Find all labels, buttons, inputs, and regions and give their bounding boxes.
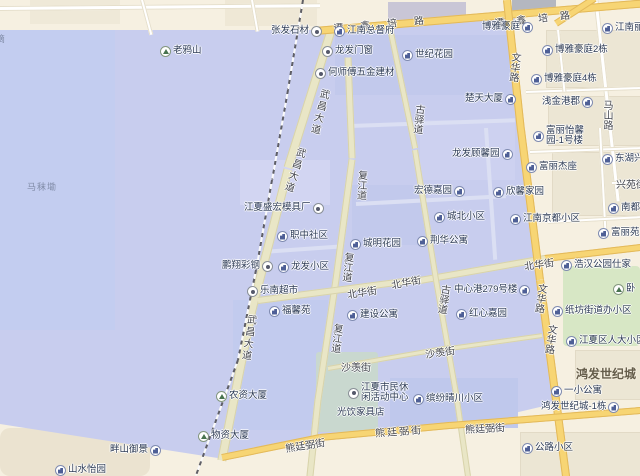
building-icon (502, 149, 513, 160)
poi-chengbei-xiaoqu[interactable]: 城北小区 (434, 212, 485, 223)
building-mountain-icon (216, 391, 227, 402)
poi-fuli-jiezuo[interactable]: 富丽杰座 (526, 162, 577, 173)
map-block (335, 35, 515, 95)
poi-pengxiang-caigang[interactable]: 鹏翔彩钢 (222, 261, 273, 272)
building-icon (55, 465, 66, 476)
minor-road (526, 86, 640, 94)
poi-zhongxingang-279[interactable]: 中心港279号楼 (454, 285, 530, 296)
poi-longfa-menchuang[interactable]: 龙发门窗 (322, 46, 373, 57)
poi-jinghua-gongyu[interactable]: 荆华公寓 (417, 236, 468, 247)
poi-jianshe-gongyu[interactable]: 建设公寓 (347, 310, 398, 321)
building-icon (531, 74, 542, 85)
road-label-mashanlu: 马山路 (599, 100, 614, 130)
water-tint (0, 30, 115, 330)
building-icon (533, 131, 544, 142)
building-icon (608, 402, 619, 413)
poi-gonglu-xiaoqu[interactable]: 公路小区 (522, 443, 573, 454)
building-icon (454, 186, 465, 197)
poi-shanshui-yiyuan[interactable]: 山水怡园 (55, 465, 106, 476)
area-label-hongfa-shijicheng: 鸿发世纪城 (576, 365, 636, 382)
building-icon (269, 306, 280, 317)
poi-nandu[interactable]: 南都 (608, 203, 640, 214)
poi-fuli-yuan[interactable]: 富丽苑 (598, 228, 640, 239)
building-icon (551, 386, 562, 397)
map-canvas[interactable]: 谭鑫培路 谭鑫培路 武昌大道 武昌大道 武昌大道 复江道 复江道 复江道 北华街… (0, 0, 640, 476)
poi-wuzi-dasha[interactable]: 物资大厦 (198, 431, 249, 442)
poi-guangyin-jiajudian[interactable]: 光饮家具店 (337, 408, 385, 418)
poi-hongfa-1dong[interactable]: 鸿发世纪城-1栋 (541, 402, 619, 413)
poi-wolong-partial[interactable]: 卧 (613, 284, 636, 295)
poi-shimin-center[interactable]: 江夏市民休闲活动中心 (348, 383, 409, 404)
poi-zhangfa-shicai[interactable]: 张发石材 (271, 26, 322, 37)
road-label-xiongtingbijie: 熊廷弼街 (465, 419, 506, 436)
building-icon (602, 23, 613, 34)
building-icon (350, 239, 361, 250)
building-icon (493, 187, 504, 198)
map-block (520, 432, 640, 476)
building-icon (608, 203, 619, 214)
poi-jiangnan-jingdu[interactable]: 江南京都小区 (510, 214, 580, 225)
poi-binfen-qingchuan[interactable]: 缤纷晴川小区 (413, 394, 483, 405)
building-icon (582, 97, 593, 108)
poi-yixiao-gongyu[interactable]: 一小公寓 (551, 386, 602, 397)
road-label-xiongtingbijie: 熊廷弼街 (375, 421, 424, 439)
building-icon (542, 45, 553, 56)
building-icon (456, 309, 467, 320)
poi-shiji-huayuan[interactable]: 世纪花园 (402, 50, 453, 61)
building-icon (598, 228, 609, 239)
poi-chutian-dasha[interactable]: 楚天大厦 (465, 94, 516, 105)
area-label-edge-partial: 滴 (0, 32, 6, 45)
poi-nongzi-dasha[interactable]: 农资大厦 (216, 391, 267, 402)
poi-haohan-gongyuan[interactable]: 浩汉公园仕家 (561, 260, 631, 271)
poi-dot-icon (247, 286, 258, 297)
poi-boya-haoting-2[interactable]: 博雅豪庭2栋 (542, 45, 608, 56)
poi-boya-haoting-4[interactable]: 博雅豪庭4栋 (531, 74, 597, 85)
poi-dot-icon (311, 26, 322, 37)
building-icon (505, 94, 516, 105)
building-icon (519, 285, 530, 296)
building-icon (402, 50, 413, 61)
poi-qianjin-gangjun[interactable]: 浅金港郡 (542, 97, 593, 108)
building-icon (602, 154, 613, 165)
poi-jiangnan-lidu[interactable]: 江南丽都 (602, 23, 640, 34)
poi-longfa-xiaoqu[interactable]: 龙发小区 (278, 262, 329, 273)
poi-chengming-huayuan[interactable]: 城明花园 (350, 239, 401, 250)
building-icon (150, 445, 161, 456)
road-label-guyidao: 古驿道 (408, 103, 426, 134)
building-icon (522, 443, 533, 454)
road-label-beihuajie: 北华街 (523, 254, 555, 273)
poi-laoyashan[interactable]: 老鸦山 (160, 46, 202, 57)
poi-xinxin-jiayuan[interactable]: 欣馨家园 (493, 187, 544, 198)
map-block (30, 0, 120, 24)
poi-dot-icon (313, 203, 324, 214)
road-label-fujiangdao: 复江道 (352, 170, 369, 201)
building-icon (552, 306, 563, 317)
building-icon (526, 162, 537, 173)
poi-longfa-guxinyuan[interactable]: 龙发顾馨园 (452, 149, 513, 160)
poi-shenghong-mujuchang[interactable]: 江夏盛宏模具厂 (244, 203, 324, 214)
poi-fuxinyuan[interactable]: 福馨苑 (269, 306, 311, 317)
poi-dot-icon (322, 46, 333, 57)
road-label-xingyuanjie: 兴苑街 (616, 176, 640, 191)
poi-dot-icon (315, 68, 326, 79)
building-icon (566, 336, 577, 347)
poi-dot-icon (262, 261, 273, 272)
building-icon (561, 260, 572, 271)
building-icon (522, 22, 533, 33)
road-label-wenhualu: 文华路 (540, 323, 559, 355)
mountain-icon (160, 46, 171, 57)
poi-lenan-chaoshi[interactable]: 乐南超市 (247, 286, 298, 297)
road-label-fujiangdao: 复江道 (337, 251, 355, 282)
poi-heshifu-wujin[interactable]: 何师傅五金建材 (315, 68, 395, 79)
road-label-shayanjie: 沙羡街 (341, 359, 371, 374)
poi-jiangnan-zongdufu[interactable]: 江南总督府 (334, 26, 395, 37)
building-icon (277, 231, 288, 242)
poi-hongxin-jiayuan[interactable]: 红心嘉园 (456, 309, 507, 320)
building-icon (347, 310, 358, 321)
poi-fuli-yixinyuan[interactable]: 富丽怡馨园-1号楼 (533, 126, 584, 147)
building-icon (434, 212, 445, 223)
area-label-mamokan: 马秣墈 (27, 180, 57, 193)
building-icon (334, 26, 345, 37)
poi-dot-icon (348, 388, 359, 399)
building-icon (417, 236, 428, 247)
road-label-wenhualu: 文华路 (504, 51, 522, 82)
building-mountain-icon (198, 431, 209, 442)
poi-jiangxia-renda[interactable]: 江夏区人大小区 (566, 336, 640, 347)
building-icon (278, 262, 289, 273)
poi-hongde-jiayuan[interactable]: 宏德嘉园 (414, 186, 465, 197)
poi-panshan-yujing[interactable]: 畔山御景 (110, 445, 161, 456)
poi-boya-haoting[interactable]: 博雅豪庭 (482, 22, 533, 33)
poi-donghu-xing[interactable]: 东湖兴城 (602, 154, 640, 165)
building-icon (413, 394, 424, 405)
poi-zhizhong-shequ[interactable]: 职中社区 (277, 231, 328, 242)
building-icon (510, 214, 521, 225)
poi-zhifang-jiedaoban[interactable]: 纸坊街道办小区 (552, 306, 632, 317)
mountain-icon (613, 284, 624, 295)
